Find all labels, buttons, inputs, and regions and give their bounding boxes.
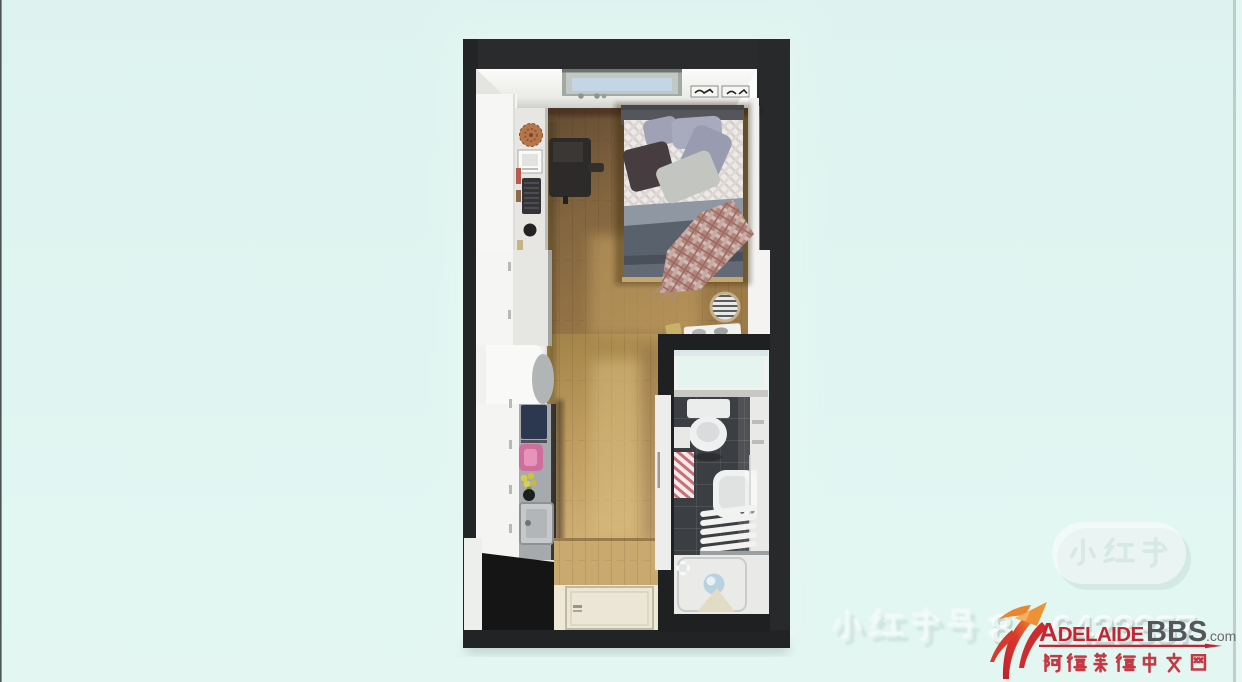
svg-text:BBS: BBS: [1146, 616, 1207, 648]
svg-text:.com: .com: [1206, 628, 1236, 644]
